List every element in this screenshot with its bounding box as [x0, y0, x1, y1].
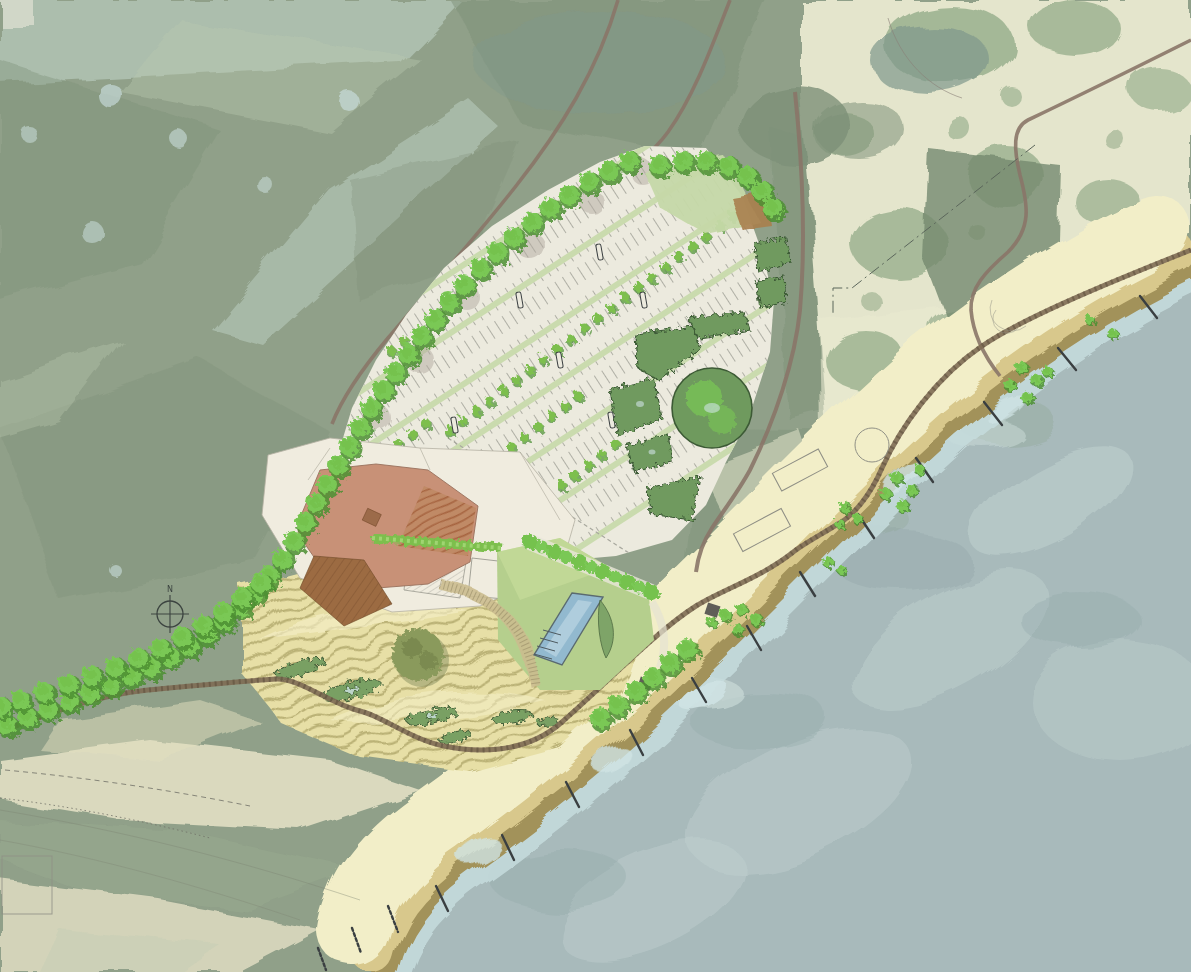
site-plan-canvas: N	[0, 0, 1191, 972]
north-label: N	[167, 585, 173, 594]
master-plan-drawing: N	[0, 0, 1191, 972]
